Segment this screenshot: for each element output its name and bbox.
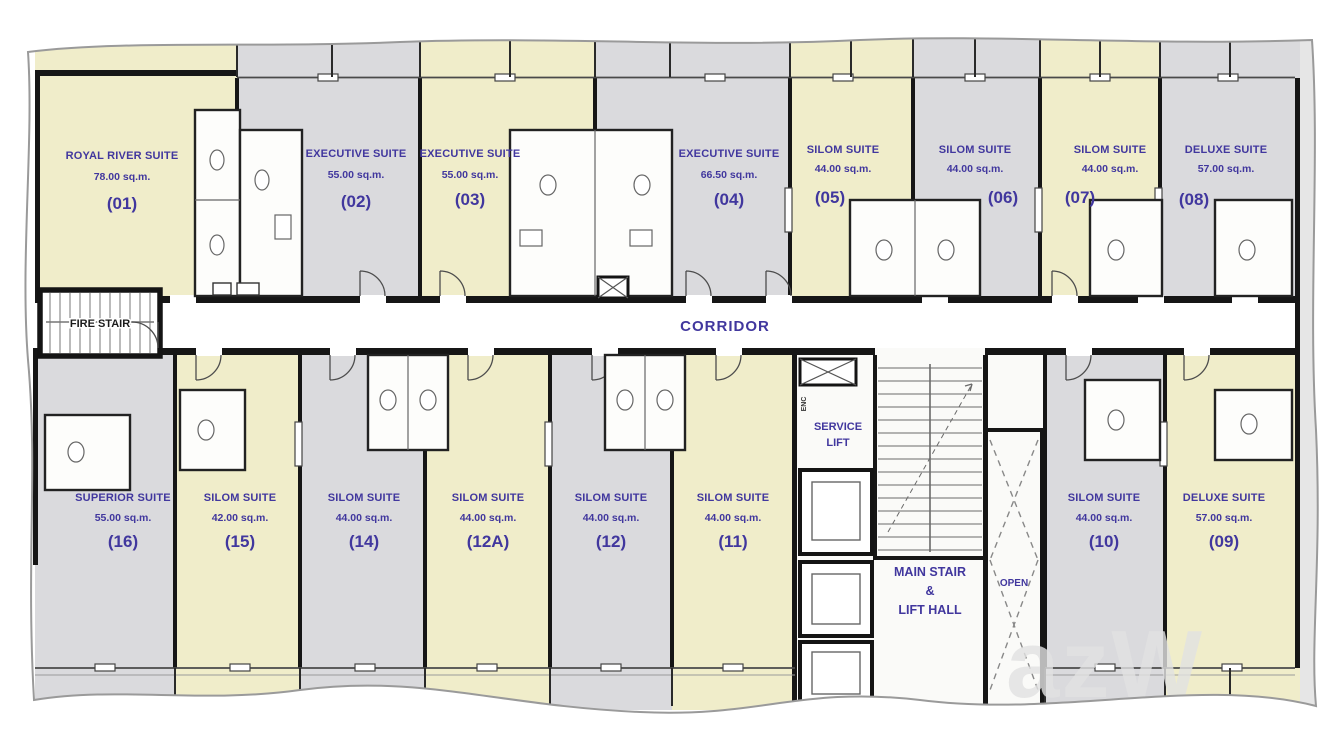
bathroom-03-04 (510, 130, 672, 296)
room-02-area: 55.00 sq.m. (328, 169, 385, 181)
room-11-shape (672, 348, 795, 668)
room-09-area: 57.00 sq.m. (1196, 512, 1253, 524)
bathroom-16 (45, 415, 130, 490)
main-stair-label-line1: MAIN STAIR (894, 565, 966, 579)
service-lift-label-line1: SERVICE (814, 421, 862, 433)
lift-shaft-2 (800, 642, 872, 704)
room-10-number: (10) (1089, 532, 1119, 551)
room-09-name: DELUXE SUITE (1183, 492, 1265, 504)
floor-plan: ROYAL RIVER SUITE 78.00 sq.m. (01) EXECU… (0, 0, 1342, 754)
room-03-area: 55.00 sq.m. (442, 169, 499, 181)
enc-label: ENC (801, 397, 808, 412)
room-06-area: 44.00 sq.m. (947, 163, 1004, 175)
main-stair-label-line2: & (925, 584, 934, 598)
room-09-number: (09) (1209, 532, 1239, 551)
room-04-number: (04) (714, 190, 744, 209)
room-04-name: EXECUTIVE SUITE (679, 148, 780, 160)
room-02-number: (02) (341, 192, 371, 211)
bathroom-02 (240, 130, 302, 296)
room-10-name: SILOM SUITE (1068, 492, 1140, 504)
room-05-area: 44.00 sq.m. (815, 163, 872, 175)
room-12-number: (12) (596, 532, 626, 551)
room-12A-number: (12A) (467, 532, 510, 551)
lift-shaft-1 (800, 562, 872, 636)
room-14-area: 44.00 sq.m. (336, 512, 393, 524)
room-02-name: EXECUTIVE SUITE (306, 148, 407, 160)
room-01-name: ROYAL RIVER SUITE (66, 150, 179, 162)
room-12A-area: 44.00 sq.m. (460, 512, 517, 524)
bathroom-07 (1090, 200, 1162, 296)
bathroom-01 (195, 110, 240, 296)
room-01-area: 78.00 sq.m. (94, 171, 151, 183)
room-14-number: (14) (349, 532, 379, 551)
room-15-area: 42.00 sq.m. (212, 512, 269, 524)
room-07-number: (07) (1065, 188, 1095, 207)
room-16-name: SUPERIOR SUITE (75, 492, 171, 504)
fire-stair-label: FIRE STAIR (70, 318, 130, 330)
room-05-name: SILOM SUITE (807, 144, 879, 156)
room-07-name: SILOM SUITE (1074, 144, 1146, 156)
room-07-area: 44.00 sq.m. (1082, 163, 1139, 175)
room-11-number: (11) (718, 532, 747, 551)
room-06-name: SILOM SUITE (939, 144, 1011, 156)
corridor-shape (35, 303, 1300, 348)
room-16-shape (35, 348, 175, 668)
room-14-name: SILOM SUITE (328, 492, 400, 504)
open-shaft-label: OPEN (1000, 578, 1028, 589)
room-12-area: 44.00 sq.m. (583, 512, 640, 524)
room-11-name: SILOM SUITE (697, 492, 769, 504)
room-04-area: 66.50 sq.m. (701, 169, 758, 181)
room-12-name: SILOM SUITE (575, 492, 647, 504)
room-05-number: (05) (815, 188, 845, 207)
main-stair-label-line3: LIFT HALL (898, 603, 962, 617)
room-03-name: EXECUTIVE SUITE (420, 148, 521, 160)
room-12A-name: SILOM SUITE (452, 492, 524, 504)
room-15-number: (15) (225, 532, 255, 551)
room-10-area: 44.00 sq.m. (1076, 512, 1133, 524)
service-lift-label-line2: LIFT (826, 437, 849, 449)
corridor-label: CORRIDOR (680, 318, 770, 335)
room-16-number: (16) (108, 532, 138, 551)
room-11-area: 44.00 sq.m. (705, 512, 762, 524)
room-01-number: (01) (107, 194, 137, 213)
room-03-number: (03) (455, 190, 485, 209)
room-16-area: 55.00 sq.m. (95, 512, 152, 524)
room-08-area: 57.00 sq.m. (1198, 163, 1255, 175)
room-08-name: DELUXE SUITE (1185, 144, 1267, 156)
room-15-name: SILOM SUITE (204, 492, 276, 504)
room-06-number: (06) (988, 188, 1018, 207)
room-08-number: (08) (1179, 190, 1209, 209)
